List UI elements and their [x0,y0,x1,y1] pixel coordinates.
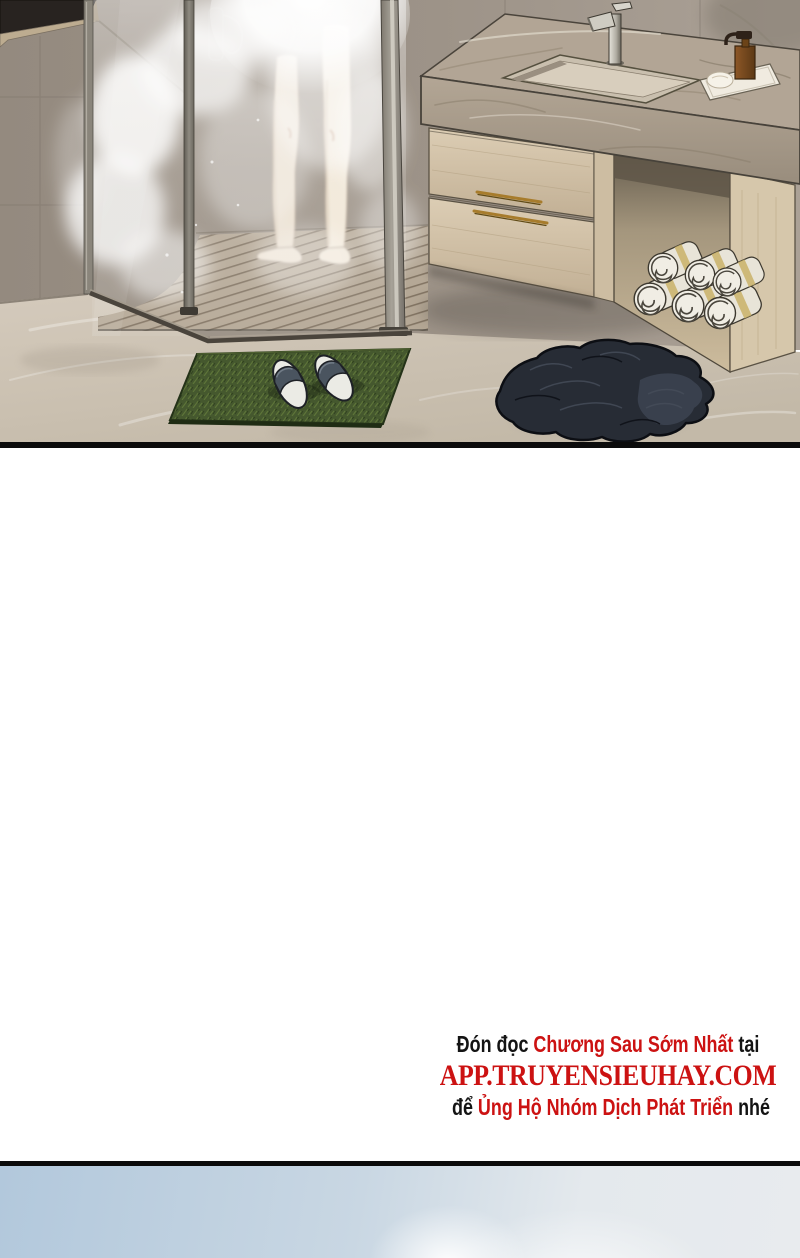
credits-line1-black-right: tại [733,1031,759,1057]
credits-line-1: Đón đọc Chương Sau Sớm Nhất tại [452,1031,764,1058]
shower-enclosure [84,0,412,341]
website-name: APP.TRUYENSIEUHAY.COM [436,1058,780,1094]
bathroom-panel-illustration [0,0,800,448]
credits-line-3: để Ủng Hộ Nhóm Dịch Phát Triển nhé [452,1094,764,1121]
grass-bath-mat [168,349,410,428]
translator-credits: Đón đọc Chương Sau Sớm Nhất tại APP.TRUY… [408,1031,800,1121]
credits-line1-red: Chương Sau Sớm Nhất [533,1031,733,1057]
comic-page: { "footer": { "line1": { "seg1": "Đón đọ… [0,0,800,1253]
credits-line3-red: Ủng Hộ Nhóm Dịch Phát Triển [478,1094,733,1120]
shower-door-edge [84,0,93,294]
credits-line3-black-right: nhé [733,1094,770,1120]
credits-line1-black-left: Đón đọc [457,1031,534,1057]
sky-panel-illustration [0,1161,800,1258]
shower-post-left [184,0,194,313]
vanity [420,2,800,372]
credits-line3-black-left: để [452,1094,478,1120]
panel-border [0,442,800,448]
